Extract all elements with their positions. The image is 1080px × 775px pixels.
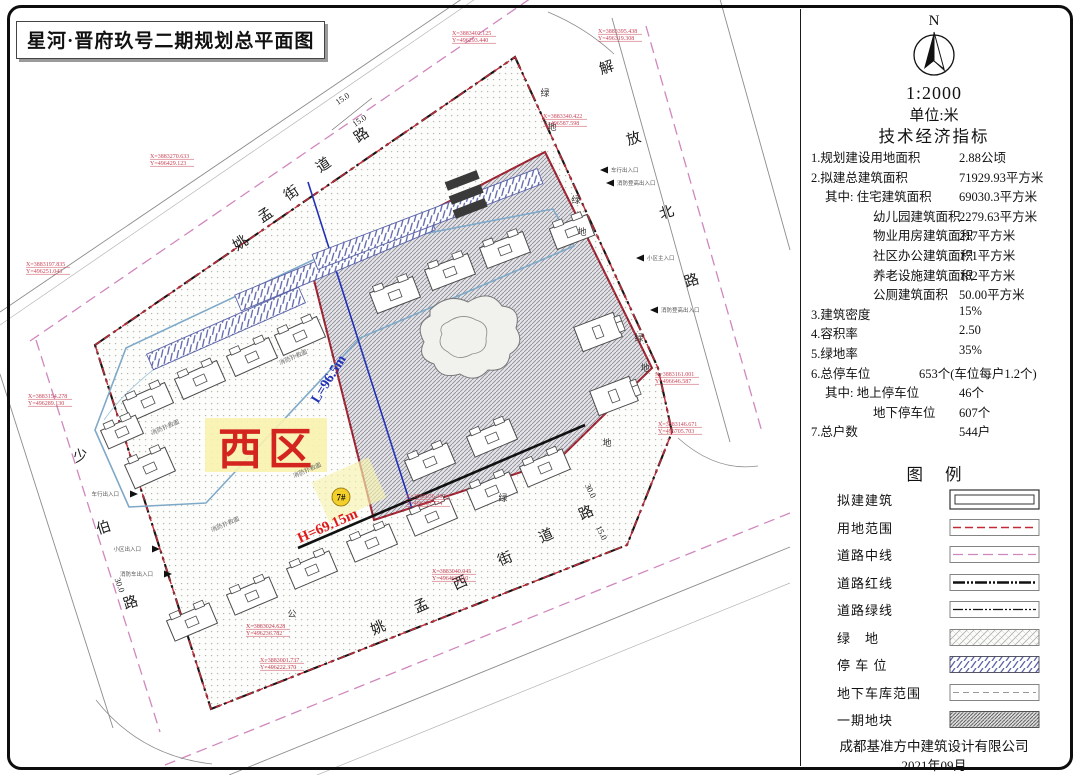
legend-item: 道路绿线: [801, 597, 1067, 625]
indicator-label: 幼儿园建筑面积: [873, 206, 961, 225]
indicator-row: 3.建筑密度15%: [811, 304, 1065, 324]
legend-swatch-road-center: [949, 544, 1041, 565]
svg-text:小区主入口: 小区主入口: [647, 254, 675, 262]
indicator-row: 5.绿地率35%: [811, 343, 1065, 363]
svg-text:消防登高出入口: 消防登高出入口: [661, 306, 700, 314]
indicator-label: 3.建筑密度: [811, 304, 870, 323]
indicator-row: 养老设施建筑面积182平方米: [811, 265, 1065, 285]
indicator-value: 544户: [959, 421, 990, 440]
indicator-label: 1.规划建设用地面积: [811, 147, 920, 166]
indicator-label: 6.总停车位: [811, 363, 870, 382]
zone-label: 西区: [218, 425, 318, 474]
legend-swatch-road-red: [949, 572, 1041, 593]
legend-label: 拟建建筑: [837, 490, 893, 509]
indicator-value: 71929.93平方米: [959, 167, 1043, 186]
indicator-row: 社区办公建筑面积171平方米: [811, 245, 1065, 265]
svg-text:绿: 绿: [540, 87, 549, 98]
legend-item: 绿 地: [801, 625, 1067, 653]
svg-text:消防车出入口: 消防车出入口: [120, 570, 153, 578]
indicator-label: 社区办公建筑面积: [873, 245, 973, 264]
indicator-label: 7.总户数: [811, 421, 858, 440]
legend-swatch-green-space: [949, 627, 1041, 648]
indicator-value: 2.88公顷: [959, 147, 1006, 166]
info-panel: N 1:2000 单位:米 技术经济指标 1.规划建设用地面积2.88公顷2.拟…: [800, 9, 1067, 766]
indicator-row: 其中: 住宅建筑面积69030.3平方米: [811, 186, 1065, 206]
north-arrow-icon: N: [897, 11, 971, 83]
legend-item: 拟建建筑: [801, 487, 1067, 515]
indicator-value: 182平方米: [959, 265, 1015, 284]
drawing-title: 星河·晋府玖号二期规划总平面图: [27, 31, 314, 52]
map-scale: 1:2000: [801, 83, 1067, 104]
indicator-label: 其中: 地上停车位: [825, 382, 919, 401]
indicators-title: 技术经济指标: [801, 123, 1067, 147]
indicator-value: 653个(车位每户1.2个): [919, 363, 1037, 382]
indicator-row: 公厕建筑面积50.00平方米: [811, 284, 1065, 304]
drawing-date: 2021年09月: [801, 755, 1067, 774]
indicator-row: 物业用房建筑面积217平方米: [811, 225, 1065, 245]
drawing-sheet: 7#西区L=96.5mH=69.15m姚孟街道路解放北路少伯路姚孟西街道路绿地绿…: [0, 0, 1080, 775]
legend-label: 停 车 位: [837, 655, 888, 674]
indicator-row: 4.容积率2.50: [811, 323, 1065, 343]
legend-label: 地下车库范围: [837, 683, 921, 702]
indicator-value: 46个: [959, 382, 984, 401]
indicator-value: 171平方米: [959, 245, 1015, 264]
landscape-garden: [420, 296, 520, 378]
svg-text:7#: 7#: [337, 493, 347, 503]
indicators-table: 1.规划建设用地面积2.88公顷2.拟建总建筑面积71929.93平方米其中: …: [811, 147, 1065, 441]
drawing-title-box: 星河·晋府玖号二期规划总平面图: [16, 21, 325, 59]
map-unit: 单位:米: [801, 104, 1067, 125]
building-badge: 7#: [332, 488, 350, 506]
indicator-row: 6.总停车位653个(车位每户1.2个): [811, 363, 1065, 383]
legend-swatch-parking: [949, 654, 1041, 675]
indicator-row: 地下停车位607个: [811, 402, 1065, 422]
indicator-value: 50.00平方米: [959, 284, 1025, 303]
legend-swatch-building: [949, 489, 1041, 510]
legend-label: 用地范围: [837, 518, 893, 537]
svg-text:绿: 绿: [634, 332, 643, 343]
indicator-value: 35%: [959, 343, 982, 358]
legend-label: 道路红线: [837, 573, 893, 592]
svg-text:公: 公: [287, 609, 296, 619]
indicator-value: 2.50: [959, 323, 981, 338]
legend-item: 用地范围: [801, 515, 1067, 543]
svg-text:车行出入口: 车行出入口: [91, 490, 119, 498]
legend-list: 拟建建筑用地范围道路中线道路红线道路绿线绿 地停 车 位地下车库范围一期地块: [801, 487, 1067, 735]
indicator-row: 1.规划建设用地面积2.88公顷: [811, 147, 1065, 167]
svg-text:小区出入口: 小区出入口: [113, 545, 141, 553]
indicator-label: 物业用房建筑面积: [873, 225, 973, 244]
indicator-value: 607个: [959, 402, 990, 421]
indicator-label: 公厕建筑面积: [873, 284, 948, 303]
legend-item: 一期地块: [801, 707, 1067, 735]
legend-label: 道路绿线: [837, 600, 893, 619]
indicator-label: 5.绿地率: [811, 343, 858, 362]
svg-text:绿: 绿: [571, 194, 580, 205]
svg-text:地: 地: [577, 226, 586, 237]
indicator-label: 养老设施建筑面积: [873, 265, 973, 284]
indicator-label: 地下停车位: [873, 402, 936, 421]
indicator-row: 2.拟建总建筑面积71929.93平方米: [811, 167, 1065, 187]
legend-title: 图例: [801, 461, 1067, 485]
indicator-label: 2.拟建总建筑面积: [811, 167, 908, 186]
indicator-value: 15%: [959, 304, 982, 319]
legend-item: 道路红线: [801, 570, 1067, 598]
svg-text:绿: 绿: [498, 492, 507, 503]
legend-swatch-phase1: [949, 709, 1041, 730]
legend-swatch-road-green: [949, 599, 1041, 620]
legend-swatch-site-boundary: [949, 517, 1041, 538]
svg-text:车行出入口: 车行出入口: [611, 166, 639, 174]
legend-item: 地下车库范围: [801, 680, 1067, 708]
indicator-label: 4.容积率: [811, 323, 858, 342]
svg-text:消防登高出入口: 消防登高出入口: [617, 179, 656, 187]
indicator-row: 7.总户数544户: [811, 421, 1065, 441]
indicator-value: 217平方米: [959, 225, 1015, 244]
north-label: N: [929, 13, 940, 29]
legend-label: 道路中线: [837, 545, 893, 564]
svg-text:地: 地: [640, 362, 649, 373]
design-company: 成都基准方中建筑设计有限公司: [801, 735, 1067, 755]
indicator-value: 69030.3平方米: [959, 186, 1037, 205]
indicator-label: 其中: 住宅建筑面积: [825, 186, 932, 205]
svg-text:地: 地: [602, 437, 611, 448]
legend-item: 道路中线: [801, 542, 1067, 570]
indicator-value: 2279.63平方米: [959, 206, 1037, 225]
legend-label: 绿 地: [837, 628, 879, 647]
legend-item: 停 车 位: [801, 652, 1067, 680]
legend-label: 一期地块: [837, 710, 893, 729]
indicator-row: 其中: 地上停车位46个: [811, 382, 1065, 402]
indicator-row: 幼儿园建筑面积2279.63平方米: [811, 206, 1065, 226]
legend-swatch-garage: [949, 682, 1041, 703]
